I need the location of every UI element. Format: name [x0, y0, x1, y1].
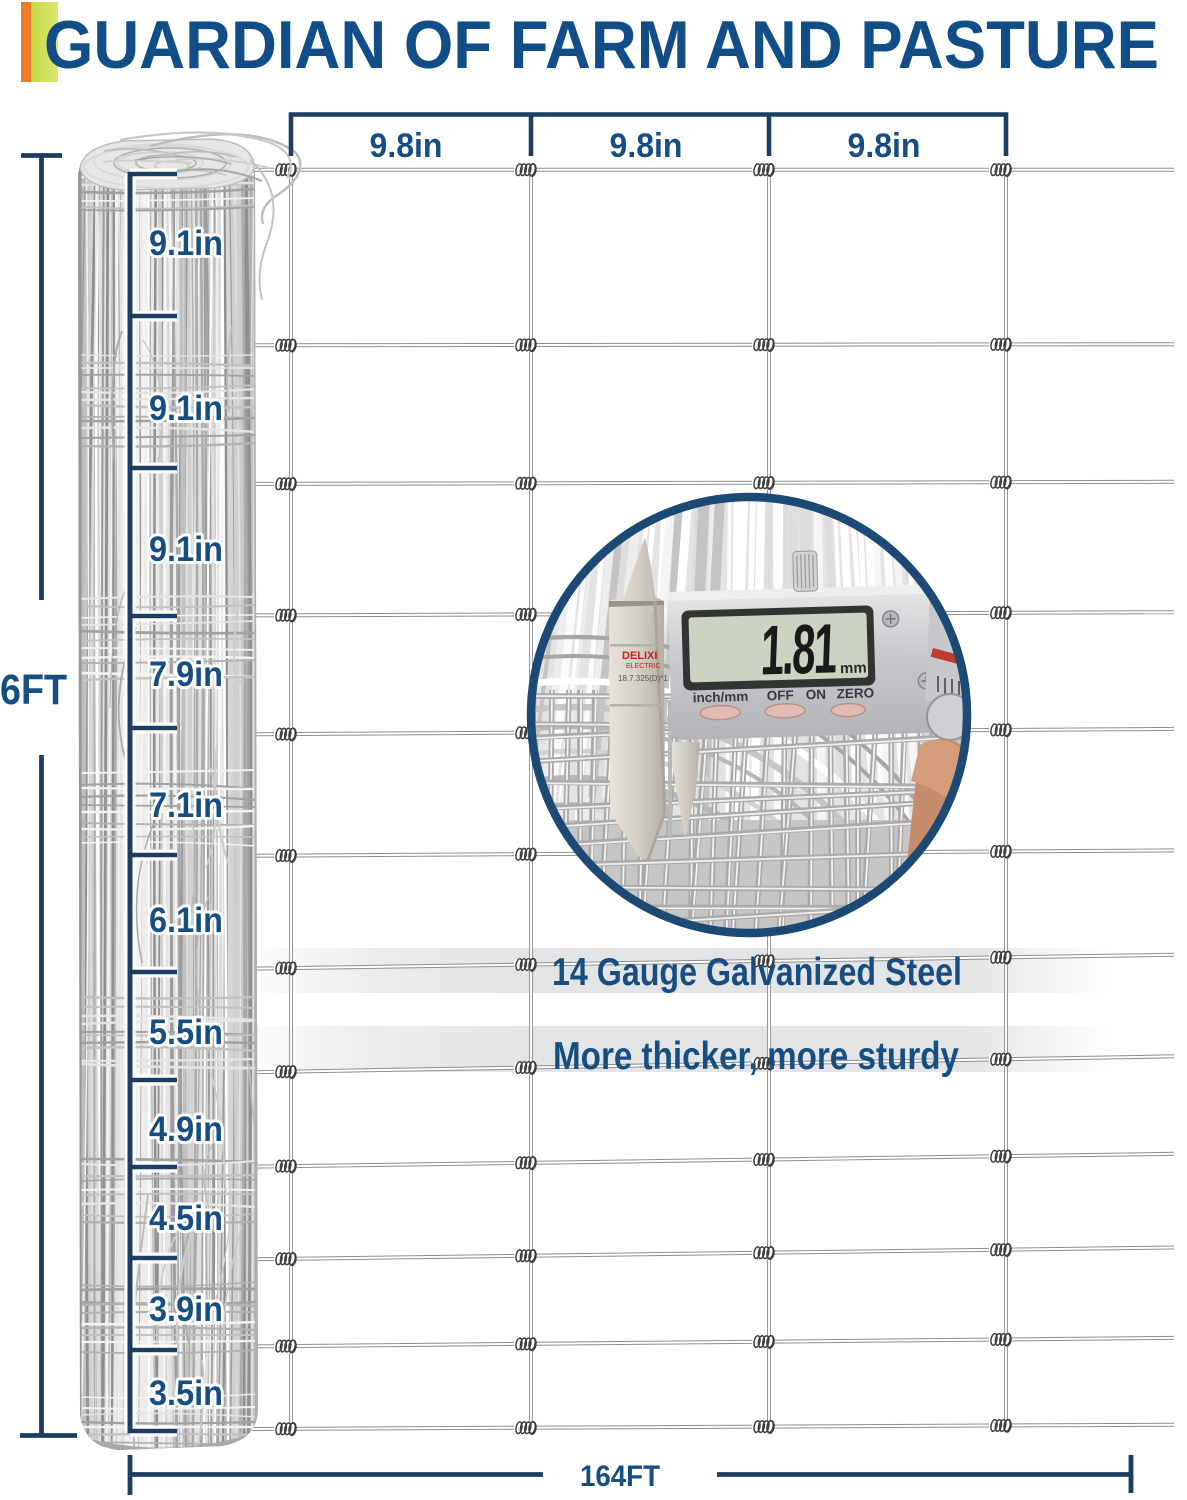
svg-text:9.1in: 9.1in	[149, 389, 223, 428]
svg-text:GUARDIAN OF FARM AND PASTURE: GUARDIAN OF FARM AND PASTURE	[44, 7, 1159, 83]
svg-text:mm: mm	[840, 660, 867, 678]
svg-text:9.1in: 9.1in	[149, 530, 223, 569]
svg-text:ELECTRIC: ELECTRIC	[626, 663, 661, 670]
svg-text:18.7.325(D)*1: 18.7.325(D)*1	[618, 674, 668, 683]
svg-text:3.9in: 3.9in	[149, 1290, 223, 1329]
svg-text:9.8in: 9.8in	[610, 127, 683, 165]
svg-text:inch/mm: inch/mm	[693, 689, 749, 706]
svg-text:9.8in: 9.8in	[848, 127, 921, 165]
svg-text:6.1in: 6.1in	[149, 901, 223, 940]
svg-text:OFF: OFF	[767, 688, 794, 704]
svg-text:9.1in: 9.1in	[149, 224, 223, 263]
svg-text:9.8in: 9.8in	[370, 127, 443, 165]
svg-text:1.81: 1.81	[760, 611, 838, 691]
svg-text:14 Gauge Galvanized Steel: 14 Gauge Galvanized Steel	[552, 951, 962, 994]
svg-text:5.5in: 5.5in	[149, 1013, 223, 1052]
svg-text:3.5in: 3.5in	[149, 1374, 223, 1413]
svg-text:More thicker, more sturdy: More thicker, more sturdy	[553, 1035, 959, 1078]
svg-text:7.9in: 7.9in	[149, 655, 223, 694]
svg-text:4.9in: 4.9in	[149, 1110, 223, 1149]
svg-text:7.1in: 7.1in	[149, 786, 223, 825]
svg-text:ON: ON	[805, 687, 826, 703]
svg-text:164FT: 164FT	[580, 1460, 660, 1493]
svg-text:ZERO: ZERO	[836, 685, 874, 701]
svg-text:4.5in: 4.5in	[149, 1199, 223, 1238]
svg-text:6FT: 6FT	[0, 666, 67, 714]
svg-text:DELIXI: DELIXI	[622, 650, 657, 662]
